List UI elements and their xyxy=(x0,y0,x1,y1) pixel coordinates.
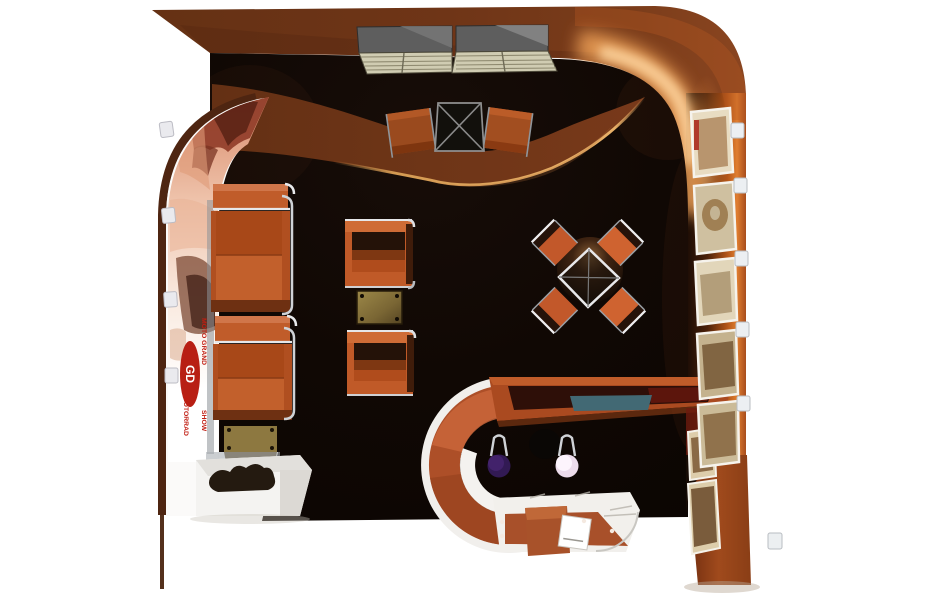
svg-text:MOTORRAD: MOTORRAD xyxy=(182,396,189,436)
svg-text:MOTO GRAND: MOTO GRAND xyxy=(200,318,207,365)
svg-text:GD: GD xyxy=(183,365,197,383)
svg-text:SHOW: SHOW xyxy=(200,410,207,432)
